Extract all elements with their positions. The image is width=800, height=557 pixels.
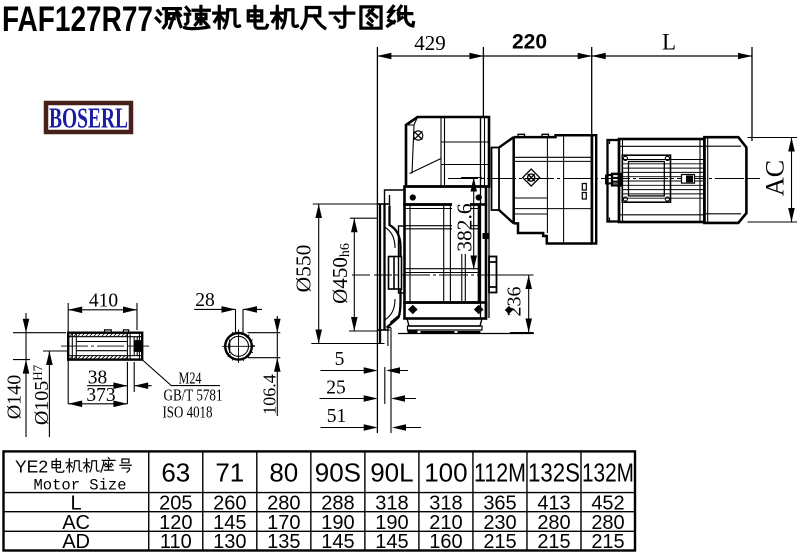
svg-text:106.4: 106.4 bbox=[260, 374, 280, 415]
svg-text:145: 145 bbox=[321, 531, 354, 553]
svg-text:220: 220 bbox=[512, 31, 547, 54]
svg-text:ISO 4018: ISO 4018 bbox=[163, 403, 213, 422]
svg-text:28: 28 bbox=[195, 290, 215, 311]
svg-text:L: L bbox=[662, 30, 676, 55]
svg-text:135: 135 bbox=[267, 531, 300, 553]
svg-text:25: 25 bbox=[326, 378, 346, 399]
svg-text:410: 410 bbox=[89, 291, 118, 312]
svg-text:Ø140: Ø140 bbox=[4, 375, 26, 419]
svg-text:160: 160 bbox=[429, 531, 462, 553]
svg-text:100: 100 bbox=[424, 458, 467, 488]
svg-text:373: 373 bbox=[86, 385, 115, 406]
svg-text:215: 215 bbox=[483, 531, 516, 553]
svg-text:63: 63 bbox=[161, 458, 190, 488]
svg-text:AD: AD bbox=[62, 531, 90, 553]
svg-text:130: 130 bbox=[213, 531, 246, 553]
svg-text:Ø550: Ø550 bbox=[292, 245, 316, 293]
svg-text:132S: 132S bbox=[528, 458, 580, 488]
svg-text:80: 80 bbox=[269, 458, 298, 488]
svg-text:51: 51 bbox=[327, 406, 347, 427]
svg-text:215: 215 bbox=[591, 531, 624, 553]
svg-text:145: 145 bbox=[375, 531, 408, 553]
svg-text:FAF127R77: FAF127R77 bbox=[2, 0, 153, 39]
svg-text:429: 429 bbox=[414, 31, 446, 55]
svg-text:110: 110 bbox=[160, 531, 192, 553]
svg-text:215: 215 bbox=[537, 531, 570, 553]
svg-text:90S: 90S bbox=[315, 458, 361, 488]
svg-text:AC: AC bbox=[761, 160, 790, 196]
svg-text:71: 71 bbox=[215, 458, 244, 488]
svg-text:132M: 132M bbox=[582, 458, 634, 488]
svg-text:382.6: 382.6 bbox=[453, 203, 477, 252]
svg-text:YE2: YE2 bbox=[15, 457, 48, 477]
svg-text:90L: 90L bbox=[370, 458, 413, 488]
svg-text:5: 5 bbox=[335, 349, 345, 370]
svg-text:112M: 112M bbox=[474, 458, 526, 488]
svg-text:236: 236 bbox=[504, 287, 526, 317]
svg-text:BOSERL: BOSERL bbox=[49, 103, 128, 135]
